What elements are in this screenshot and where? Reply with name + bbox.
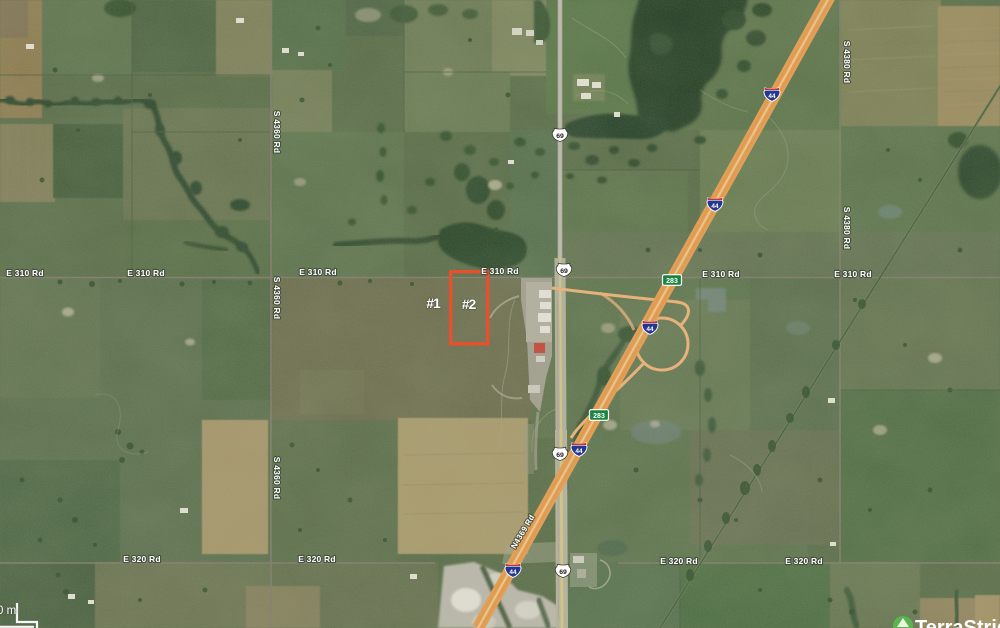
- svg-text:S 4360 Rd: S 4360 Rd: [272, 457, 282, 499]
- svg-text:E 310 Rd: E 310 Rd: [834, 269, 872, 279]
- svg-text:E 310 Rd: E 310 Rd: [702, 269, 740, 279]
- svg-text:E 310 Rd: E 310 Rd: [299, 267, 337, 277]
- svg-text:#2: #2: [462, 296, 477, 312]
- svg-text:E 320 Rd: E 320 Rd: [298, 554, 336, 564]
- svg-text:S 4380 Rd: S 4380 Rd: [842, 207, 852, 249]
- svg-text:S 4360 Rd: S 4360 Rd: [272, 277, 282, 319]
- svg-text:TerraStride: TerraStride: [915, 617, 1000, 628]
- svg-text:E 320 Rd: E 320 Rd: [785, 556, 823, 566]
- svg-text:E 310 Rd: E 310 Rd: [127, 268, 165, 278]
- svg-text:E 320 Rd: E 320 Rd: [123, 554, 161, 564]
- svg-text:S 4360 Rd: S 4360 Rd: [272, 111, 282, 153]
- svg-text:S 4380 Rd: S 4380 Rd: [842, 41, 852, 83]
- svg-text:#1: #1: [426, 295, 441, 311]
- svg-text:0 m: 0 m: [0, 605, 16, 617]
- svg-text:E 310 Rd: E 310 Rd: [481, 266, 519, 276]
- svg-text:E 310 Rd: E 310 Rd: [6, 268, 44, 278]
- svg-text:E 320 Rd: E 320 Rd: [660, 556, 698, 566]
